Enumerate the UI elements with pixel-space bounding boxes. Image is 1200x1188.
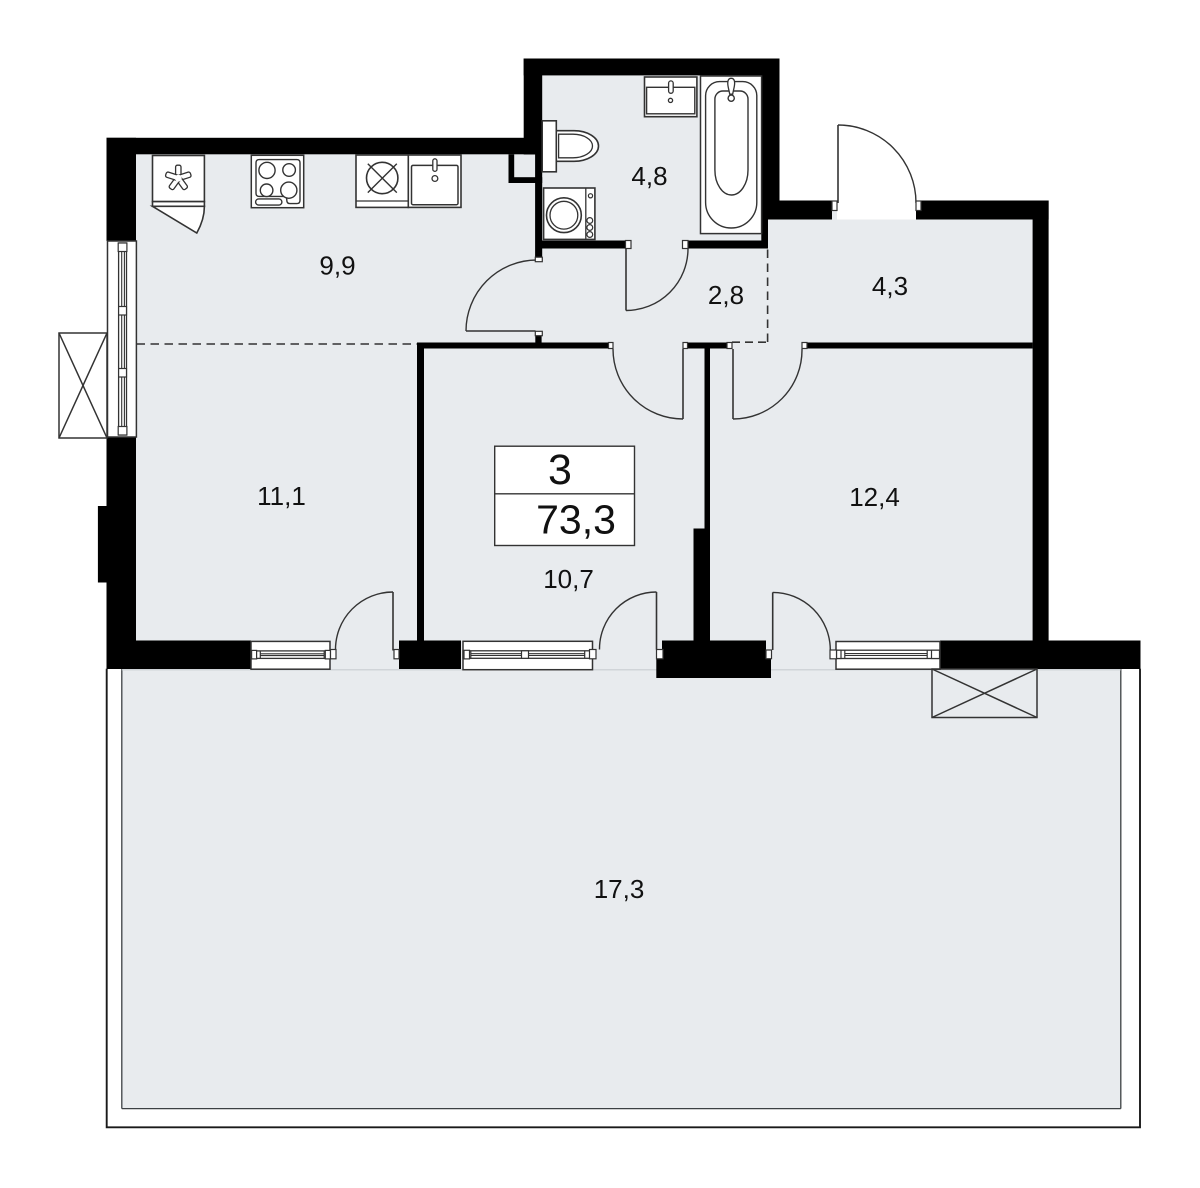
svg-text:17,3: 17,3 <box>594 874 645 904</box>
svg-text:4,3: 4,3 <box>872 271 908 301</box>
svg-text:73,3: 73,3 <box>536 497 616 543</box>
svg-text:12,4: 12,4 <box>849 482 900 512</box>
svg-text:11,1: 11,1 <box>257 481 306 511</box>
svg-text:4,8: 4,8 <box>631 161 667 191</box>
svg-text:2,8: 2,8 <box>708 280 744 310</box>
svg-text:3: 3 <box>548 446 572 494</box>
svg-text:10,7: 10,7 <box>543 564 594 594</box>
svg-text:9,9: 9,9 <box>319 251 355 281</box>
